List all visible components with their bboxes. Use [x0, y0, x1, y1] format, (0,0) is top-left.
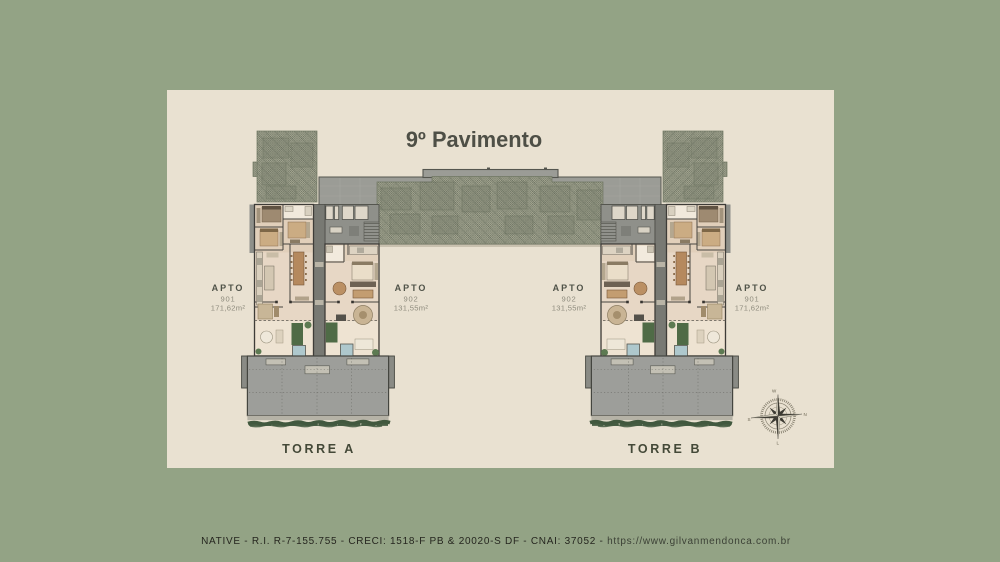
svg-text:APTO: APTO [395, 283, 428, 293]
svg-text:131,55m²: 131,55m² [552, 304, 587, 313]
svg-text:APTO: APTO [736, 283, 769, 293]
svg-text:902: 902 [403, 295, 418, 304]
svg-text:NATIVE - R.I. R-7-155.755 - CR: NATIVE - R.I. R-7-155.755 - CRECI: 1518-… [201, 536, 791, 547]
svg-text:TORRE B: TORRE B [628, 442, 702, 456]
svg-text:901: 901 [220, 295, 235, 304]
svg-text:171,62m²: 171,62m² [735, 304, 770, 313]
svg-text:TORRE A: TORRE A [282, 442, 356, 456]
svg-text:901: 901 [744, 295, 759, 304]
svg-text:171,62m²: 171,62m² [211, 304, 246, 313]
svg-text:APTO: APTO [212, 283, 245, 293]
svg-text:N: N [804, 412, 807, 417]
svg-text:131,55m²: 131,55m² [394, 304, 429, 313]
svg-text:902: 902 [561, 295, 576, 304]
svg-text:9º Pavimento: 9º Pavimento [406, 127, 542, 152]
svg-text:APTO: APTO [553, 283, 586, 293]
svg-text:S: S [748, 417, 751, 422]
